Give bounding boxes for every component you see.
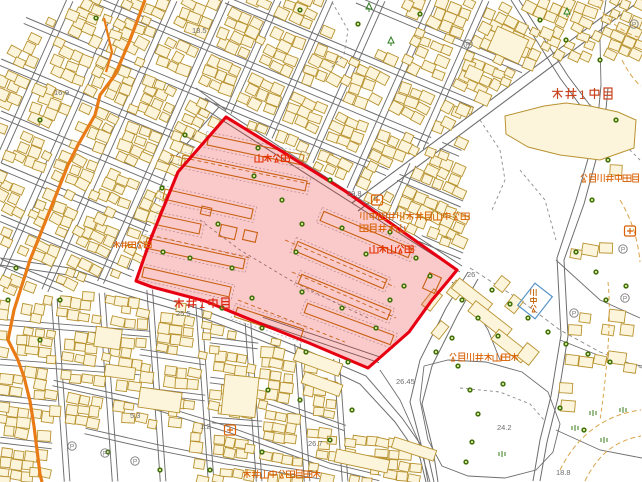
- svg-text:1.2: 1.2: [200, 422, 210, 431]
- svg-text:26.7: 26.7: [308, 439, 323, 448]
- svg-text:24.2: 24.2: [497, 423, 512, 432]
- svg-text:18.5: 18.5: [192, 26, 207, 35]
- svg-text:1: 1: [579, 88, 586, 102]
- svg-text:P: P: [133, 459, 137, 466]
- svg-text:P: P: [623, 296, 627, 303]
- svg-text:5.3: 5.3: [130, 411, 140, 420]
- svg-text:26.45: 26.45: [396, 377, 415, 386]
- svg-text:25.5: 25.5: [176, 309, 191, 318]
- svg-text:P: P: [632, 22, 636, 29]
- svg-text:16-9: 16-9: [54, 88, 69, 97]
- svg-text:1: 1: [199, 299, 205, 311]
- svg-text:26: 26: [467, 270, 475, 279]
- svg-text:P: P: [466, 42, 470, 49]
- svg-text:P: P: [572, 311, 576, 318]
- svg-text:P: P: [103, 451, 107, 458]
- svg-text:18.8: 18.8: [556, 468, 571, 477]
- svg-text:P: P: [621, 247, 625, 254]
- svg-text:29.8: 29.8: [347, 189, 362, 198]
- svg-text:P: P: [70, 444, 74, 451]
